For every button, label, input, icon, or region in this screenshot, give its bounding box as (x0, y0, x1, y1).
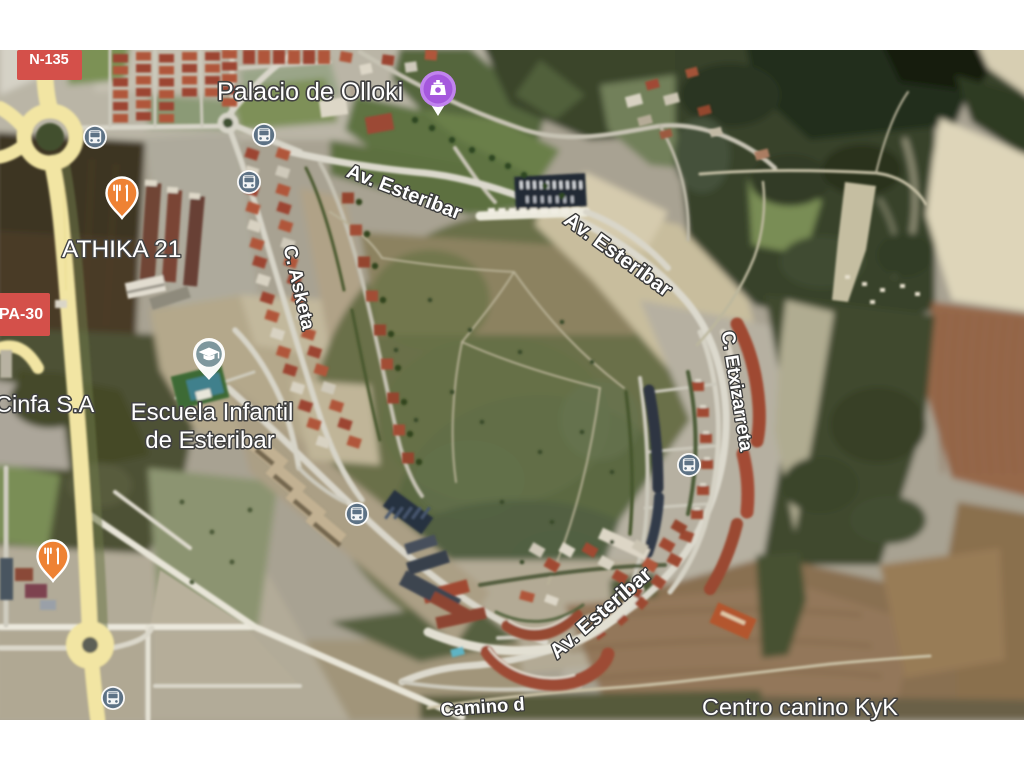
svg-text:Escuela Infantil: Escuela Infantil (131, 399, 294, 426)
svg-text:de Esteribar: de Esteribar (145, 427, 274, 454)
svg-text:PA-30: PA-30 (0, 306, 43, 323)
svg-text:Centro canino KyK: Centro canino KyK (702, 694, 898, 720)
svg-text:Cinfa S.A: Cinfa S.A (0, 391, 95, 417)
svg-text:Palacio de Olloki: Palacio de Olloki (217, 78, 403, 106)
svg-text:ATHIKA 21: ATHIKA 21 (62, 236, 181, 263)
svg-text:N-135: N-135 (29, 52, 69, 68)
